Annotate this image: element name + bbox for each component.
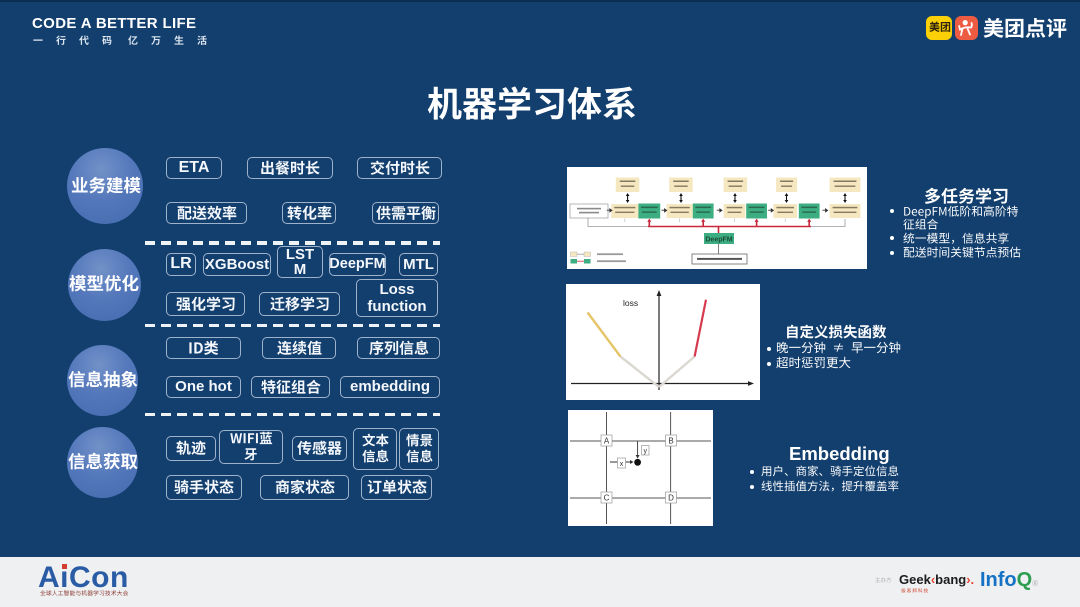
svg-text:B: B <box>668 437 673 446</box>
svg-text:loss: loss <box>623 298 638 308</box>
svg-text:C: C <box>604 494 610 503</box>
svg-text:D: D <box>668 494 674 503</box>
svg-text:y: y <box>643 448 647 455</box>
svg-text:x: x <box>620 461 624 468</box>
svg-text:A: A <box>604 437 610 446</box>
svg-text:DeepFM: DeepFM <box>705 237 732 244</box>
